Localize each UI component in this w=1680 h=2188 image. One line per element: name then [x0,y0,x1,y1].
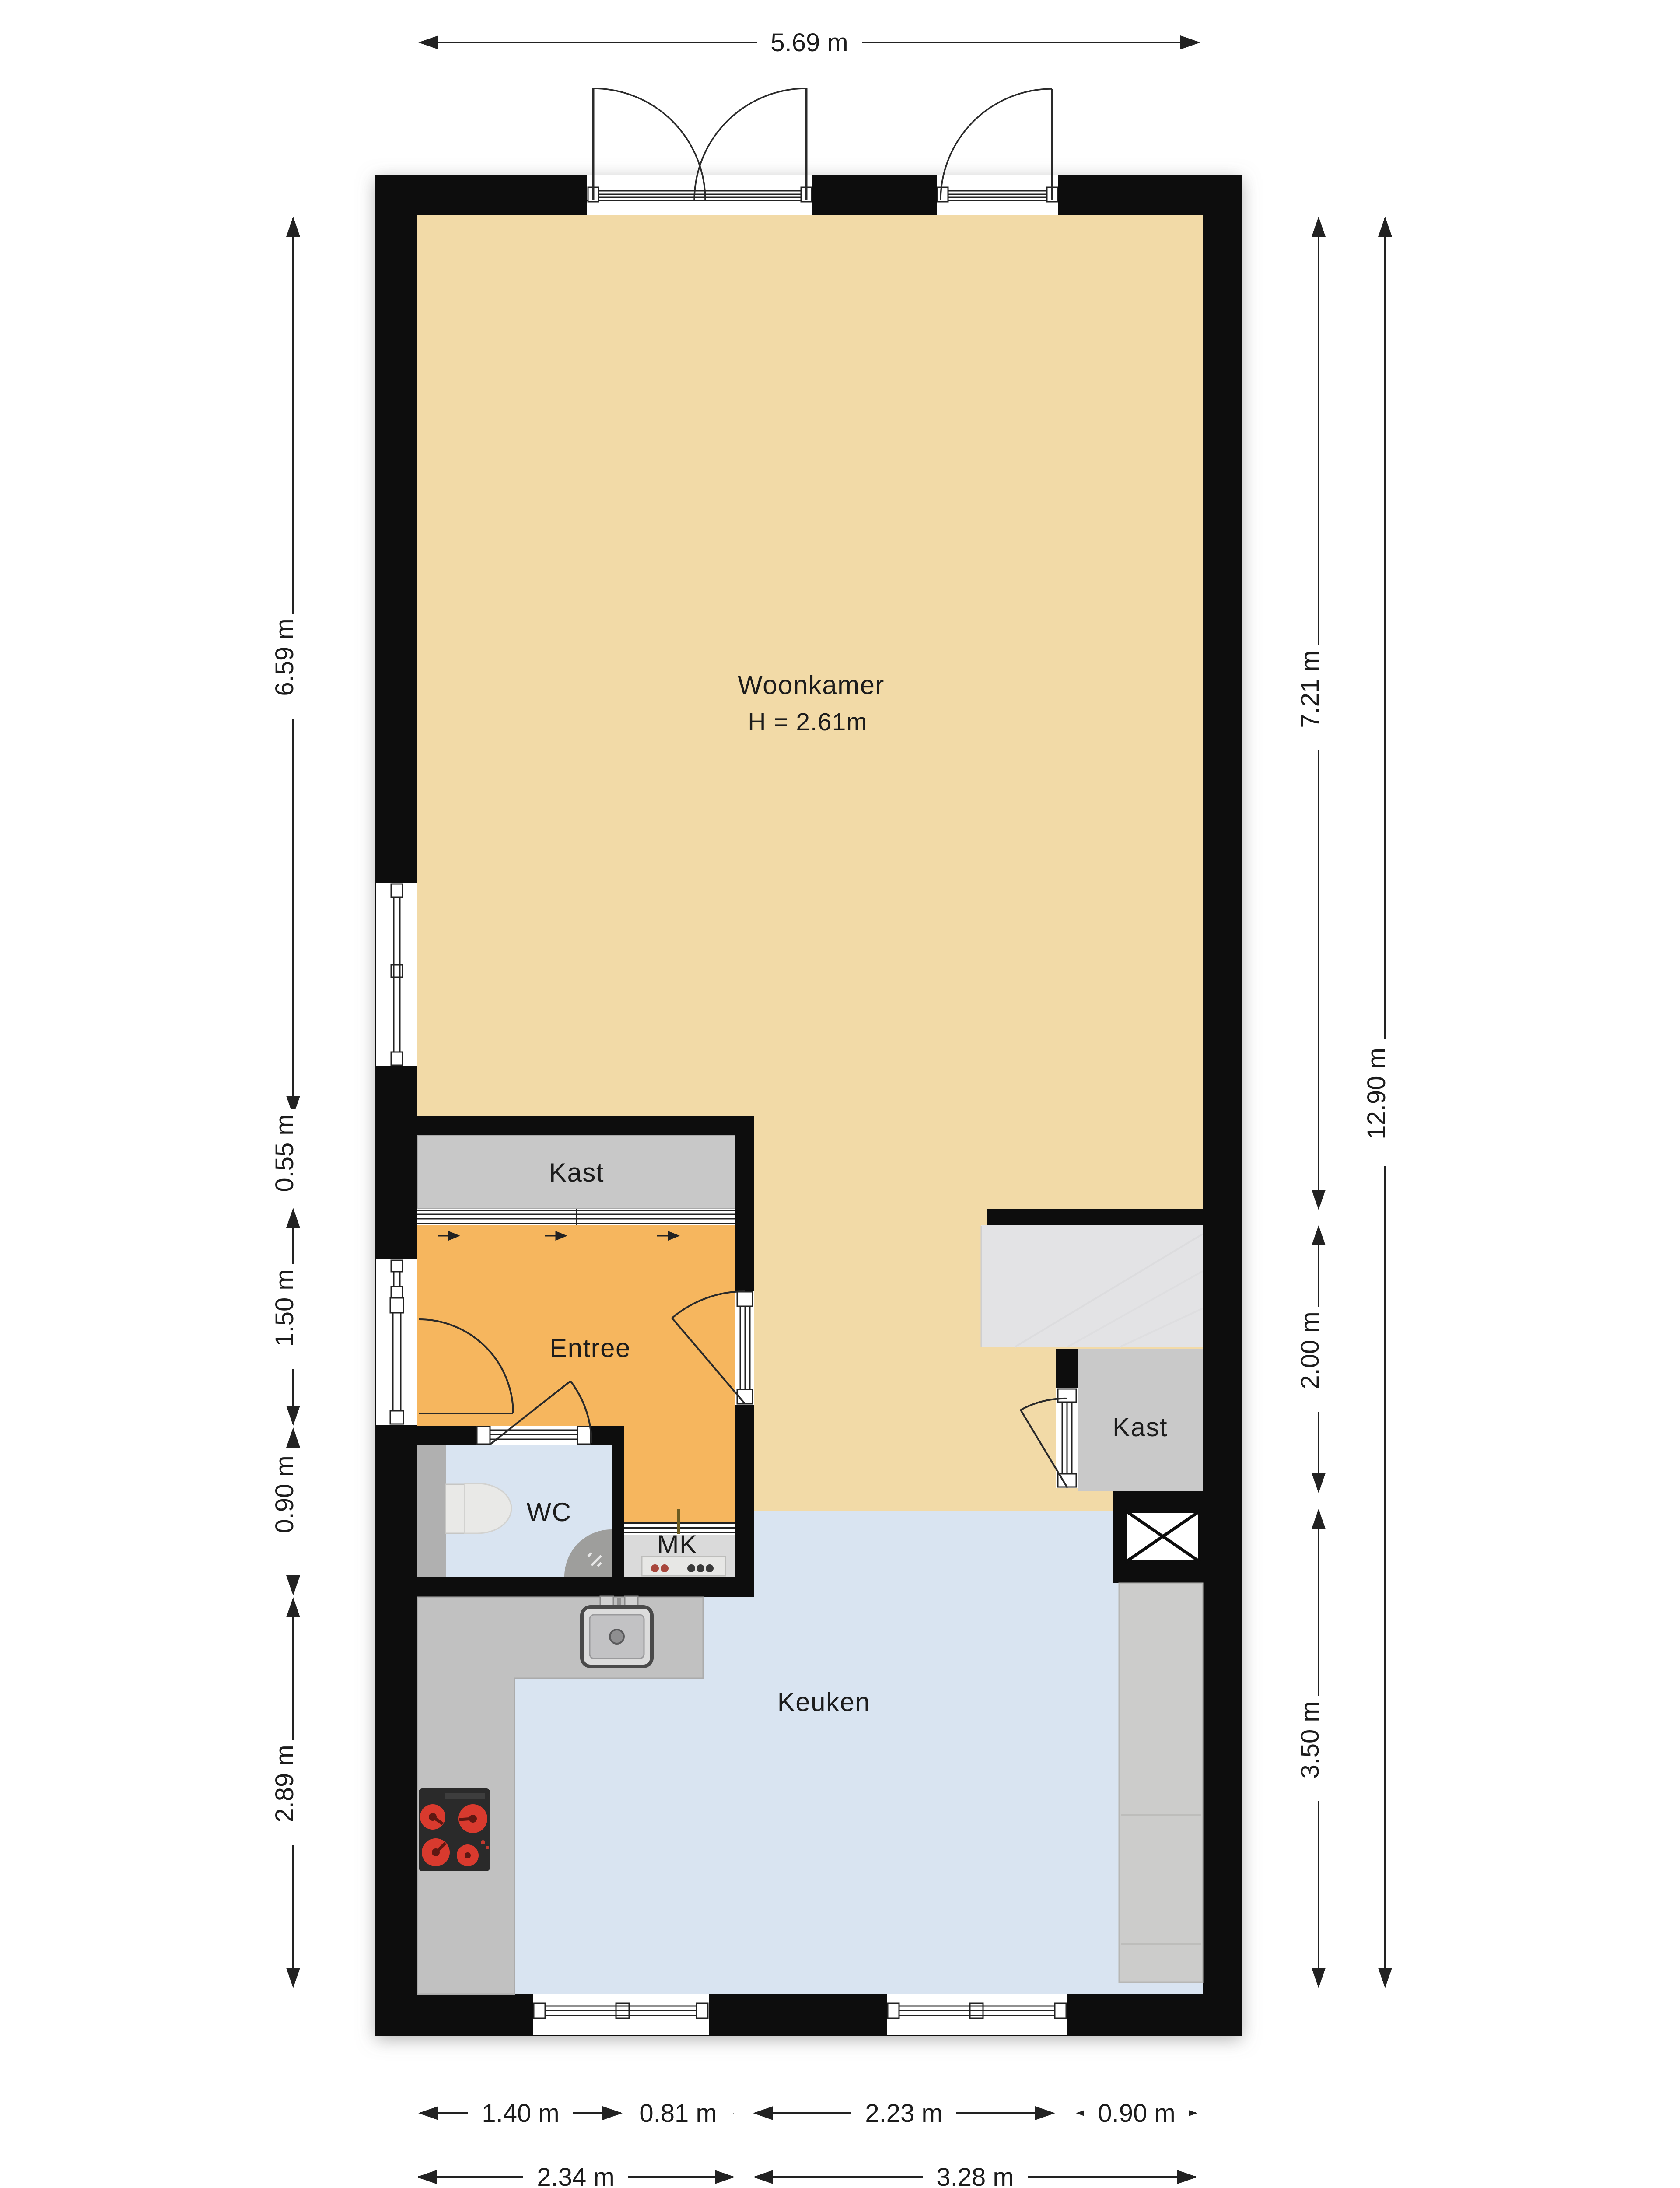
svg-text:2.34 m: 2.34 m [537,2163,614,2188]
svg-text:2.23 m: 2.23 m [865,2099,942,2128]
svg-text:2.00 m: 2.00 m [1296,1311,1324,1389]
svg-text:1.50 m: 1.50 m [270,1269,299,1346]
svg-text:Woonkamer: Woonkamer [738,670,885,700]
svg-text:2.89 m: 2.89 m [270,1745,299,1822]
svg-text:6.59 m: 6.59 m [270,618,299,696]
svg-text:Entree: Entree [549,1333,631,1363]
svg-text:0.90 m: 0.90 m [270,1455,299,1533]
svg-text:0.55 m: 0.55 m [270,1114,299,1192]
svg-text:3.50 m: 3.50 m [1296,1701,1324,1778]
svg-text:H = 2.61m: H = 2.61m [748,708,868,736]
svg-text:7.21 m: 7.21 m [1296,650,1324,728]
svg-text:WC: WC [527,1497,572,1527]
svg-text:3.28 m: 3.28 m [936,2163,1014,2188]
svg-text:Keuken: Keuken [777,1687,871,1717]
svg-text:1.40 m: 1.40 m [482,2099,559,2128]
svg-text:5.69 m: 5.69 m [770,28,848,57]
svg-text:12.90 m: 12.90 m [1362,1048,1391,1140]
svg-text:Kast: Kast [1113,1413,1168,1442]
svg-text:0.81 m: 0.81 m [639,2099,717,2128]
svg-text:Kast: Kast [549,1158,604,1187]
svg-text:MK: MK [657,1530,698,1559]
svg-text:0.90 m: 0.90 m [1098,2099,1175,2128]
